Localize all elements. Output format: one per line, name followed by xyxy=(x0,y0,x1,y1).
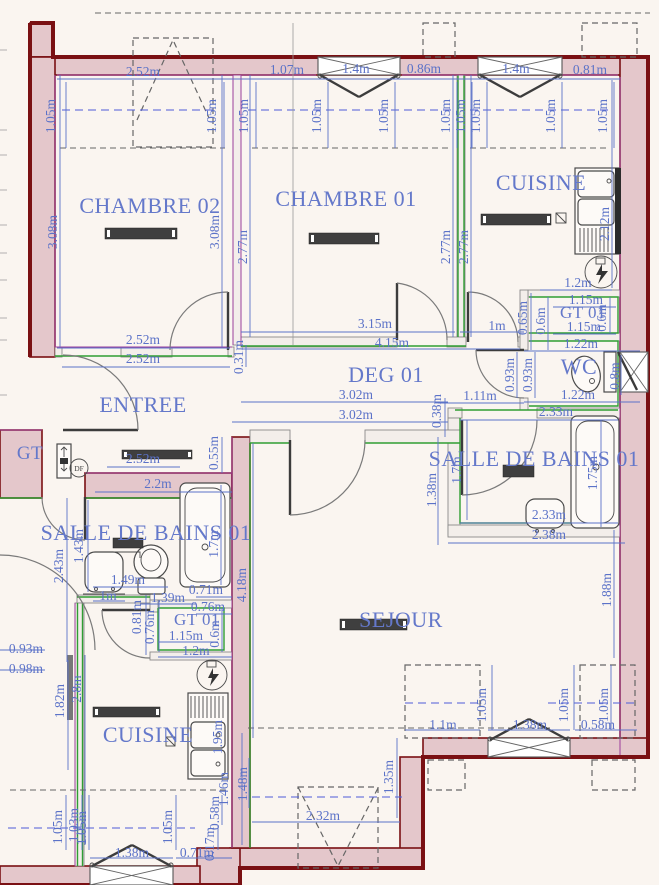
dimension-label: 0.81m xyxy=(573,62,608,77)
dimension-label: 1.05m xyxy=(474,687,489,722)
sink-edge-strip xyxy=(615,168,621,254)
dimension-label: 1.38m xyxy=(424,472,439,507)
dimension-label: 1.05m xyxy=(376,98,391,133)
dimension-label: 0.76m xyxy=(142,609,157,644)
dimension-label: 3.15m xyxy=(358,316,393,331)
dimension-label: 2.52m xyxy=(126,351,161,366)
door-chambre01 xyxy=(397,283,447,340)
lightning-icon xyxy=(208,668,219,686)
dimension-label: 3.08m xyxy=(45,214,60,249)
wall-right xyxy=(620,57,648,757)
dimension-label: 1.4m xyxy=(342,61,370,76)
door-chambre02 xyxy=(170,292,228,350)
df-label: DF xyxy=(74,464,84,473)
dimension-label: 2.77m xyxy=(438,229,453,264)
dimension-label: 0.93m xyxy=(9,641,44,656)
floor-plan: 2.52m1.07m1.4m0.86m1.4m0.81m1.05m1.05m1.… xyxy=(0,0,659,885)
dimension-label: 0.8m xyxy=(607,362,622,390)
dimension-label: 0.38m xyxy=(429,393,444,428)
dimension-label: 1.22m xyxy=(561,387,596,402)
dimension-label: 1.11m xyxy=(463,388,497,403)
dimension-label: 2.33m xyxy=(539,404,574,419)
radiator-cuisine-top xyxy=(481,213,566,225)
dimension-label: 2.77m xyxy=(235,229,250,264)
room-label: CUISINE xyxy=(103,722,193,747)
dimension-label: 0.31m xyxy=(231,339,246,374)
dimension-label: 0.93m xyxy=(502,357,517,392)
radiator-chambre01 xyxy=(309,233,379,244)
dimension-label: 2.2m xyxy=(144,476,172,491)
room-label: CHAMBRE 01 xyxy=(275,186,416,211)
dimension-label: 3.02m xyxy=(339,407,374,422)
dimension-label: 2.43m xyxy=(51,548,66,583)
dimension-label: 0.65m xyxy=(515,300,530,335)
dimension-label: 1.49m xyxy=(111,572,146,587)
room-label: GT 01 xyxy=(174,610,220,629)
door-sejour xyxy=(290,440,365,515)
dimension-label: 1m xyxy=(488,318,506,333)
dimension-label: 1.05m xyxy=(160,809,175,844)
electrical-circle-left xyxy=(197,660,227,690)
dimension-label: 1.05m xyxy=(204,98,219,133)
dimension-label: 2.38m xyxy=(532,527,567,542)
dimension-label: 2.8m xyxy=(69,675,84,703)
dimension-label: 1.38m xyxy=(115,845,150,860)
dimension-label: 4.18m xyxy=(234,567,249,602)
dimension-label: 1.38m xyxy=(513,717,548,732)
dimension-label: 4.15m xyxy=(375,335,410,350)
dimension-label: 1.05m xyxy=(43,98,58,133)
dimension-label: 1.05m xyxy=(468,98,483,133)
dimension-label: 1.39m xyxy=(151,590,186,605)
dimension-label: 1.05m xyxy=(596,687,611,722)
wall-top-left-step xyxy=(30,23,53,57)
dimension-label: 2.52m xyxy=(126,451,161,466)
dimension-label: 1.05m xyxy=(74,810,89,845)
dimension-label: 1.05m xyxy=(543,98,558,133)
dimension-label: 1.82m xyxy=(52,683,67,718)
dimension-label: 0.93m xyxy=(520,357,535,392)
dimension-label: 1.35m xyxy=(381,759,396,794)
dimension-label: 1.05m xyxy=(236,98,251,133)
room-label: SALLE DE BAINS 01 xyxy=(429,446,640,471)
dimension-label: 1.48m xyxy=(235,766,250,801)
room-label: SALLE DE BAINS 01 xyxy=(41,520,252,545)
dimension-label: 0.86m xyxy=(407,61,442,76)
dimension-label: 0.17m xyxy=(202,826,217,861)
wall-bottom-center xyxy=(230,848,423,868)
room-label: GT 01 xyxy=(560,303,606,322)
dimension-label: 1.1m xyxy=(429,717,457,732)
dimension-label: 1.46m xyxy=(216,771,231,806)
dimension-label: 3.02m xyxy=(339,387,374,402)
dimension-label: 1.88m xyxy=(599,572,614,607)
dimension-label: 1.15m xyxy=(169,628,204,643)
room-label: CUISINE xyxy=(496,170,586,195)
room-label: ENTREE xyxy=(99,392,186,417)
dimension-label: 2.52m xyxy=(126,64,161,79)
radiator-chambre02 xyxy=(105,228,177,239)
dimension-label: 0.71m xyxy=(189,582,224,597)
dimension-label: 1.05m xyxy=(595,98,610,133)
floor-plan-svg: 2.52m1.07m1.4m0.86m1.4m0.81m1.05m1.05m1.… xyxy=(0,0,659,885)
dimension-label: 1.4m xyxy=(502,61,530,76)
dimension-label: 0.98m xyxy=(9,661,44,676)
dimension-label: 1.05m xyxy=(50,809,65,844)
lightning-icon xyxy=(596,264,608,284)
wall-entree-left-block xyxy=(0,430,42,498)
dimension-label: 0.6m xyxy=(533,307,548,335)
dimension-label: 1.22m xyxy=(564,336,599,351)
dimension-label: 1m xyxy=(99,588,117,603)
dimension-label: 1.07m xyxy=(270,62,305,77)
dimension-label: 1.05m xyxy=(309,98,324,133)
room-label: DEG 01 xyxy=(348,362,424,387)
dimension-label: 1.2m xyxy=(182,643,210,658)
dimension-label: 2.52m xyxy=(126,332,161,347)
dimension-label: 2.33m xyxy=(532,507,567,522)
dimension-label: 1.2m xyxy=(564,275,592,290)
dimension-label: 3.08m xyxy=(207,214,222,249)
dimension-label: 2.12m xyxy=(597,206,612,241)
dimension-label: 1.05m xyxy=(453,98,468,133)
dimension-label: 1.05m xyxy=(556,687,571,722)
room-label: GT xyxy=(17,443,43,464)
dimension-label: 2.32m xyxy=(306,808,341,823)
dimension-label: 2.77m xyxy=(456,229,471,264)
room-label: WC xyxy=(561,354,597,379)
dimension-label: 1.95m xyxy=(210,719,225,754)
dimension-label: 0.55m xyxy=(206,435,221,470)
door-cuisine-top xyxy=(468,292,518,342)
room-labels: CHAMBRE 02CHAMBRE 01CUISINEDEG 01ENTREEG… xyxy=(17,170,640,747)
room-label: SEJOUR xyxy=(359,607,443,632)
room-label: CHAMBRE 02 xyxy=(79,193,220,218)
dimension-label: 1.05m xyxy=(438,98,453,133)
